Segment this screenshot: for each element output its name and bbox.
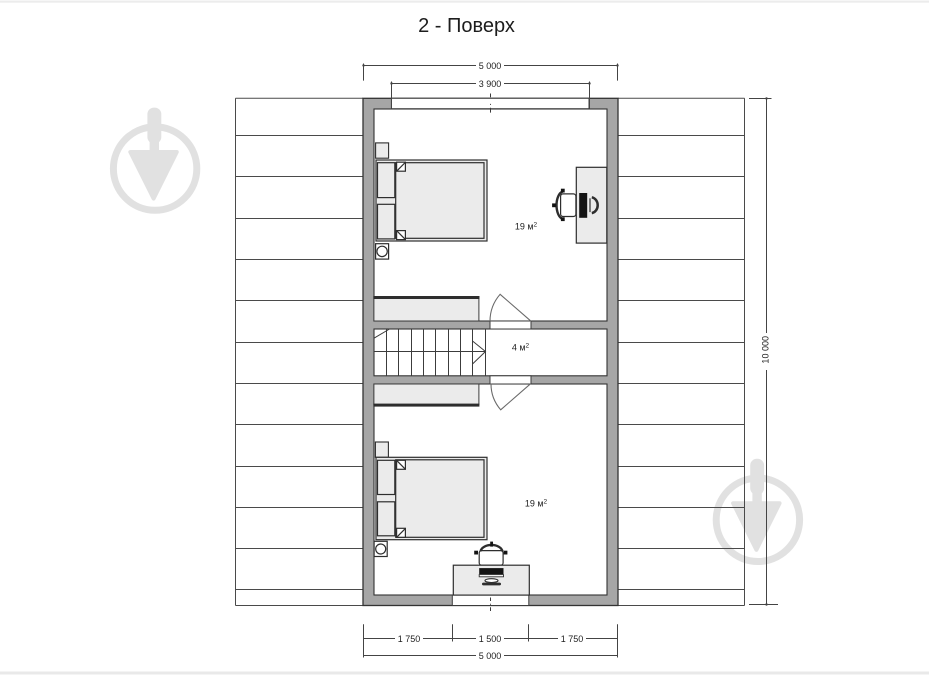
- svg-text:5 000: 5 000: [479, 651, 502, 661]
- svg-text:1 750: 1 750: [561, 634, 584, 644]
- svg-text:3 900: 3 900: [479, 79, 502, 89]
- svg-text:1 750: 1 750: [398, 634, 421, 644]
- svg-text:10 000: 10 000: [760, 336, 770, 364]
- svg-text:5 000: 5 000: [479, 61, 502, 71]
- svg-text:1 500: 1 500: [479, 634, 502, 644]
- svg-text:2 - Поверх: 2 - Поверх: [418, 15, 515, 37]
